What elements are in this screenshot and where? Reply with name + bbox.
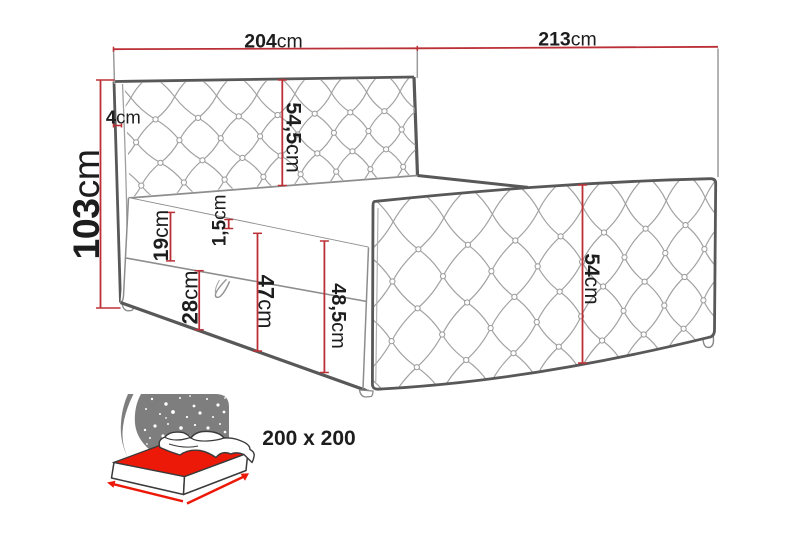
svg-text:28cm: 28cm [178, 271, 203, 325]
svg-text:103cm: 103cm [65, 149, 107, 259]
svg-text:1,5cm: 1,5cm [210, 195, 231, 247]
svg-text:47cm: 47cm [254, 275, 279, 329]
svg-text:213cm: 213cm [538, 29, 597, 51]
svg-text:54,5cm: 54,5cm [282, 102, 306, 173]
svg-text:204cm: 204cm [244, 30, 303, 52]
svg-text:4cm: 4cm [106, 106, 141, 127]
svg-text:48,5cm: 48,5cm [327, 283, 349, 349]
svg-text:200 x 200: 200 x 200 [262, 427, 355, 450]
svg-text:54cm: 54cm [580, 253, 603, 304]
svg-text:19cm: 19cm [150, 210, 173, 261]
